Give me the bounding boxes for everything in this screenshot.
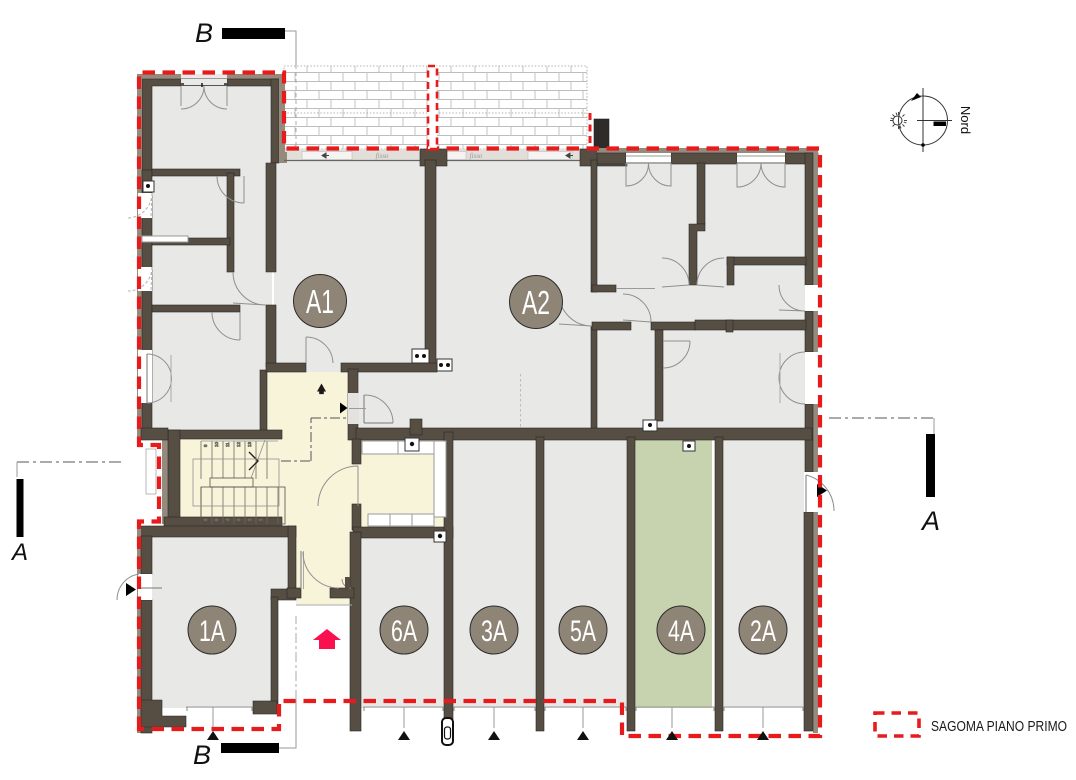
svg-text:13: 13: [247, 441, 252, 447]
svg-text:6A: 6A: [391, 615, 417, 648]
svg-text:12: 12: [236, 441, 241, 447]
svg-text:fisso: fisso: [376, 152, 389, 160]
svg-text:fisso: fisso: [470, 152, 483, 160]
svg-text:A1: A1: [306, 283, 334, 320]
svg-text:Nord: Nord: [958, 106, 973, 134]
svg-text:A: A: [920, 506, 940, 536]
svg-text:B: B: [195, 18, 213, 48]
svg-text:5A: 5A: [570, 615, 596, 648]
svg-text:2A: 2A: [750, 615, 776, 648]
svg-text:11: 11: [225, 442, 230, 447]
svg-text:3A: 3A: [481, 615, 507, 648]
svg-text:SAGOMA PIANO PRIMO: SAGOMA PIANO PRIMO: [931, 719, 1067, 735]
svg-text:B: B: [193, 740, 211, 770]
svg-text:A: A: [10, 539, 28, 566]
svg-text:1A: 1A: [199, 615, 225, 648]
svg-text:10: 10: [214, 441, 219, 447]
svg-text:4A: 4A: [668, 615, 694, 648]
svg-text:A2: A2: [522, 284, 550, 321]
